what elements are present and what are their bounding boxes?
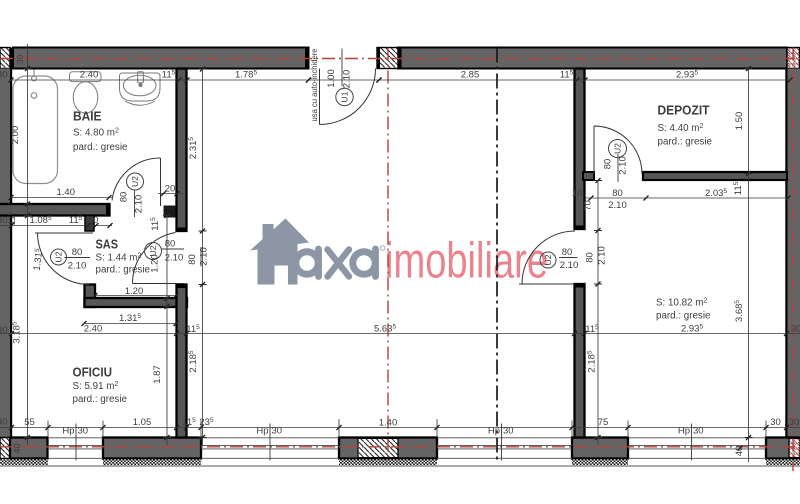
svg-text:30: 30 xyxy=(0,215,8,226)
svg-text:2.10: 2.10 xyxy=(68,261,87,272)
svg-text:2.10: 2.10 xyxy=(165,253,184,264)
svg-text:2.10: 2.10 xyxy=(199,247,210,266)
svg-text:30: 30 xyxy=(770,417,781,428)
svg-text:2.10: 2.10 xyxy=(560,260,579,271)
svg-text:2.00: 2.00 xyxy=(10,126,21,145)
svg-text:U2: U2 xyxy=(130,176,140,187)
svg-text:30: 30 xyxy=(693,426,704,437)
svg-text:2.40: 2.40 xyxy=(84,324,103,335)
svg-text:30: 30 xyxy=(0,70,8,81)
svg-text:pard.: gresie: pard.: gresie xyxy=(658,137,713,148)
svg-text:80: 80 xyxy=(187,254,198,265)
svg-text:DEPOZIT: DEPOZIT xyxy=(658,104,710,118)
svg-text:1.40: 1.40 xyxy=(379,418,398,429)
svg-text:2.85: 2.85 xyxy=(461,70,480,81)
svg-text:usa cu auto-inchidere: usa cu auto-inchidere xyxy=(309,48,319,121)
svg-text:S: 5.91 m2: S: 5.91 m2 xyxy=(73,381,119,392)
svg-text:40: 40 xyxy=(734,446,745,457)
svg-text:30: 30 xyxy=(272,426,283,437)
svg-text:pard.: gresie: pard.: gresie xyxy=(73,394,128,405)
svg-text:2.10: 2.10 xyxy=(342,70,353,89)
svg-text:S: 10.82 m2: S: 10.82 m2 xyxy=(656,298,707,309)
svg-text:2.10: 2.10 xyxy=(597,246,608,265)
svg-text:pard.: gresie: pard.: gresie xyxy=(656,311,711,322)
svg-text:pard.: gresie: pard.: gresie xyxy=(73,142,128,153)
svg-text:80: 80 xyxy=(119,192,130,203)
svg-text:1.20: 1.20 xyxy=(125,286,144,297)
svg-text:2.10: 2.10 xyxy=(608,200,627,211)
svg-text:U2: U2 xyxy=(543,254,553,265)
svg-text:30: 30 xyxy=(789,417,800,428)
svg-text:1.50: 1.50 xyxy=(734,112,745,131)
svg-text:U1: U1 xyxy=(340,91,350,102)
svg-text:2.10: 2.10 xyxy=(134,195,145,214)
svg-text:10: 10 xyxy=(572,188,583,199)
svg-text:pard.: gresie: pard.: gresie xyxy=(96,265,151,276)
svg-text:Hp: Hp xyxy=(256,426,268,437)
svg-text:80: 80 xyxy=(562,247,573,258)
svg-text:2.40: 2.40 xyxy=(80,70,99,81)
svg-text:2.10: 2.10 xyxy=(618,156,629,175)
svg-text:1.87: 1.87 xyxy=(152,365,163,384)
svg-text:80: 80 xyxy=(165,239,176,250)
svg-text:1.20: 1.20 xyxy=(150,254,161,273)
svg-text:Hp: Hp xyxy=(62,426,74,437)
svg-text:30: 30 xyxy=(0,325,8,336)
svg-text:S: 4.80 m2: S: 4.80 m2 xyxy=(73,128,119,139)
svg-text:imobiliare: imobiliare xyxy=(385,233,548,289)
svg-text:30: 30 xyxy=(503,426,514,437)
svg-text:S: 1.44 m2: S: 1.44 m2 xyxy=(96,253,142,264)
svg-text:1.00: 1.00 xyxy=(326,69,337,88)
svg-text:80: 80 xyxy=(72,247,83,258)
svg-text:S: 4.40 m2: S: 4.40 m2 xyxy=(658,123,704,134)
svg-text:U2: U2 xyxy=(54,251,64,262)
svg-text:BAIE: BAIE xyxy=(73,110,102,124)
svg-text:30: 30 xyxy=(791,324,800,335)
svg-text:Hp: Hp xyxy=(488,426,500,437)
svg-text:80: 80 xyxy=(603,159,614,170)
svg-text:1.40: 1.40 xyxy=(57,187,76,198)
svg-text:30: 30 xyxy=(0,417,8,428)
svg-text:SAS: SAS xyxy=(96,238,119,252)
svg-text:70: 70 xyxy=(583,200,594,211)
svg-text:OFICIU: OFICIU xyxy=(73,366,113,380)
svg-text:80: 80 xyxy=(585,252,596,263)
svg-text:80: 80 xyxy=(612,188,623,199)
svg-text:1.05: 1.05 xyxy=(133,417,152,428)
svg-text:40: 40 xyxy=(12,443,23,454)
svg-text:30: 30 xyxy=(15,55,25,65)
svg-text:75: 75 xyxy=(598,417,609,428)
svg-text:Hp: Hp xyxy=(678,426,690,437)
svg-text:20: 20 xyxy=(165,184,176,195)
svg-text:U2: U2 xyxy=(613,143,623,154)
svg-text:30: 30 xyxy=(78,426,89,437)
svg-text:55: 55 xyxy=(24,417,35,428)
